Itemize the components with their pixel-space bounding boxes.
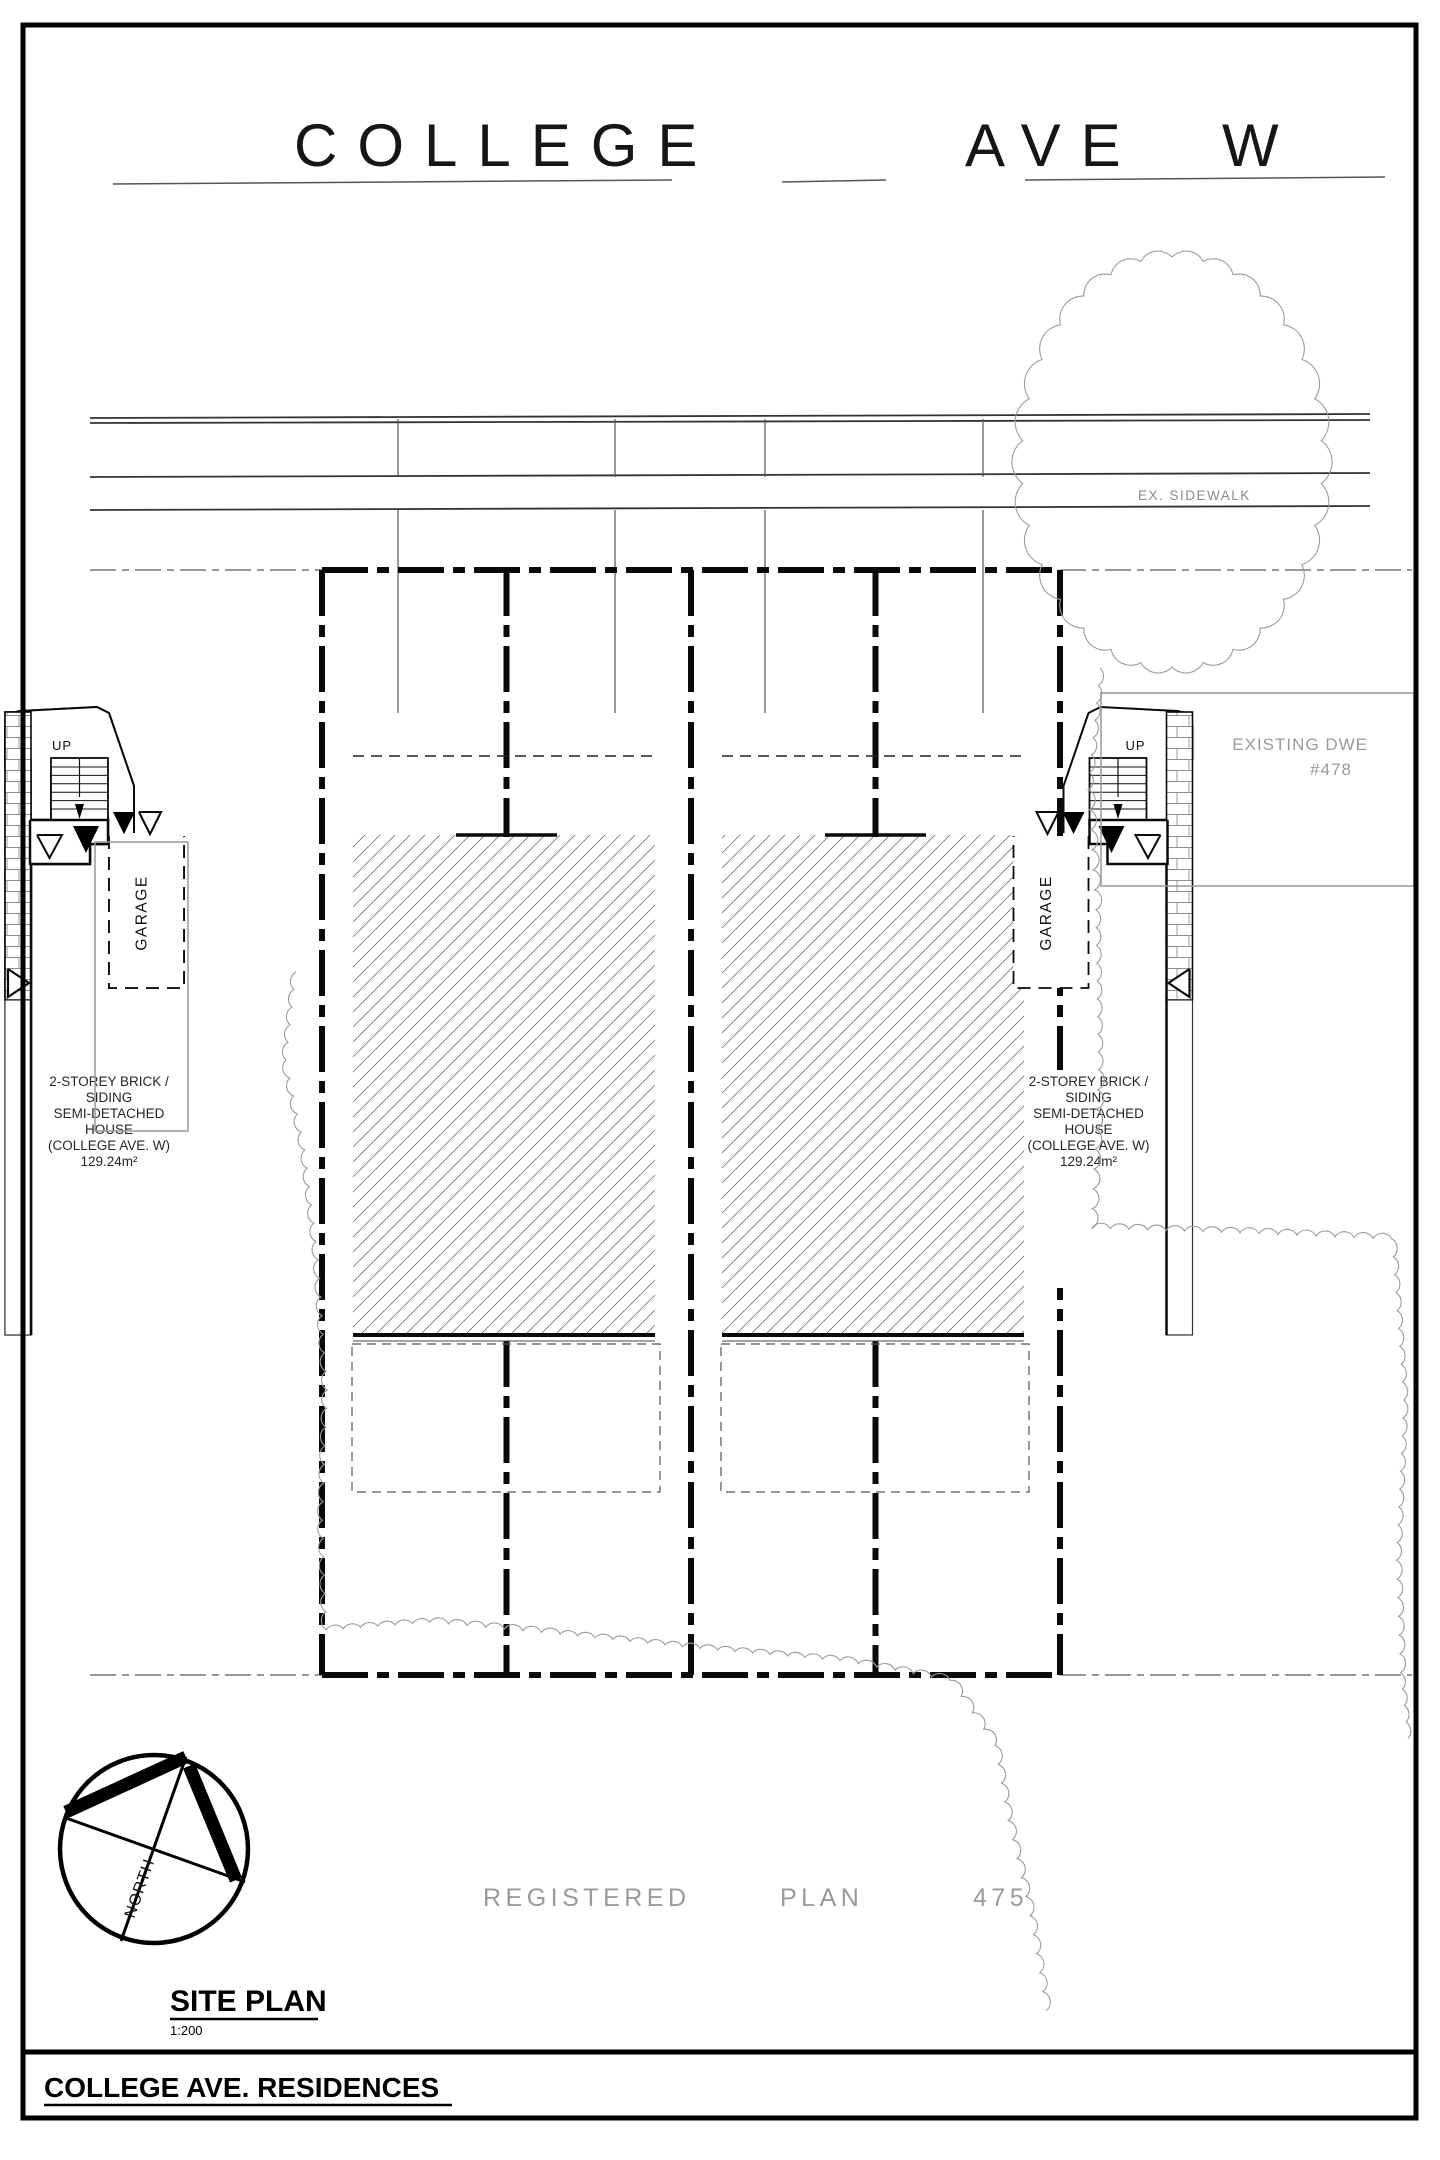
street-title: COLLEGE AVE W xyxy=(113,112,1385,184)
unit-description-line: 129.24m² xyxy=(80,1154,138,1169)
sheet-scale: 1:200 xyxy=(170,2023,203,2038)
project-title: COLLEGE AVE. RESIDENCES xyxy=(44,2072,439,2103)
north-arrow: NORTH xyxy=(60,1755,248,1943)
garage-label: GARAGE xyxy=(1038,875,1055,950)
existing-dwelling-number: #478 xyxy=(1310,760,1352,779)
plan-word: PLAN xyxy=(780,1884,863,1912)
site-plan-drawing: COLLEGE AVE W EX. SIDEWALK UPGARAGE2-STO… xyxy=(0,0,1440,2160)
unit-description-line: HOUSE xyxy=(1064,1122,1112,1137)
curb-line-inner xyxy=(90,420,1370,423)
registered-plan-label: REGISTERED PLAN 475 xyxy=(483,1884,1028,1912)
street-underline-2 xyxy=(782,180,886,182)
garage-door-marker-open xyxy=(1037,812,1059,834)
street-name-w: W xyxy=(1222,112,1299,179)
unit-description-line: SEMI-DETACHED xyxy=(54,1106,165,1121)
tree-outline-right-border xyxy=(1392,1239,1411,1739)
unit-description-line: SIDING xyxy=(86,1090,133,1105)
garage-door-marker-open xyxy=(139,812,161,834)
house-body-hatch xyxy=(353,835,655,1335)
unit-description-line: SEMI-DETACHED xyxy=(1033,1106,1144,1121)
sidewalk-line-1 xyxy=(90,473,1370,477)
street-name-college: COLLEGE xyxy=(294,112,717,179)
side-wall-lower xyxy=(5,1000,31,1335)
unit-2: UPGARAGE2-STOREY BRICK /SIDINGSEMI-DETAC… xyxy=(1014,707,1193,1335)
drawing-sheet: COLLEGE AVE W EX. SIDEWALK UPGARAGE2-STO… xyxy=(0,0,1440,2160)
plan-number: 475 xyxy=(973,1884,1028,1912)
road-and-sidewalk: EX. SIDEWALK xyxy=(90,414,1370,510)
street-underline-1 xyxy=(113,180,672,184)
unit-description-line: (COLLEGE AVE. W) xyxy=(1027,1138,1149,1153)
unit-description-line: (COLLEGE AVE. W) xyxy=(48,1138,170,1153)
project-title-band: COLLEGE AVE. RESIDENCES xyxy=(44,2072,452,2105)
floor-clear-area xyxy=(67,1176,151,1288)
north-arrow-bar-2 xyxy=(189,1766,236,1880)
curb-line-outer xyxy=(90,414,1370,418)
porch-up-label: UP xyxy=(52,738,72,753)
unit-description-line: 2-STOREY BRICK / xyxy=(1029,1074,1149,1089)
page-border xyxy=(23,25,1416,2118)
street-name-ave: AVE xyxy=(965,112,1141,179)
unit-description-line: 129.24m² xyxy=(1060,1154,1118,1169)
brick-wall xyxy=(1167,712,1193,1000)
tree-outline-large xyxy=(1012,251,1332,673)
side-wall-lower xyxy=(1167,1000,1193,1335)
buildings: UPGARAGE2-STOREY BRICK /SIDINGSEMI-DETAC… xyxy=(5,707,1440,1492)
garage-label: GARAGE xyxy=(134,875,151,950)
sheet-title: SITE PLAN xyxy=(170,1985,327,2018)
sidewalk-label: EX. SIDEWALK xyxy=(1138,488,1251,503)
north-label: NORTH xyxy=(122,1857,159,1921)
unit-description-line: 2-STOREY BRICK / xyxy=(49,1074,169,1089)
porch-up-label: UP xyxy=(1125,738,1145,753)
sheet-title-block: SITE PLAN 1:200 xyxy=(170,1985,327,2038)
unit-description-line: HOUSE xyxy=(85,1122,133,1137)
house-body-hatch xyxy=(722,835,1024,1335)
floor-clear-area xyxy=(1047,1176,1131,1288)
existing-dwelling-label: EXISTING DWE xyxy=(1232,735,1368,754)
tree-outline-east-link xyxy=(1092,1223,1392,1239)
unit-description-line: SIDING xyxy=(1065,1090,1112,1105)
sidewalk-line-2 xyxy=(90,506,1370,510)
registered-word: REGISTERED xyxy=(483,1884,691,1912)
brick-wall xyxy=(5,712,31,1000)
